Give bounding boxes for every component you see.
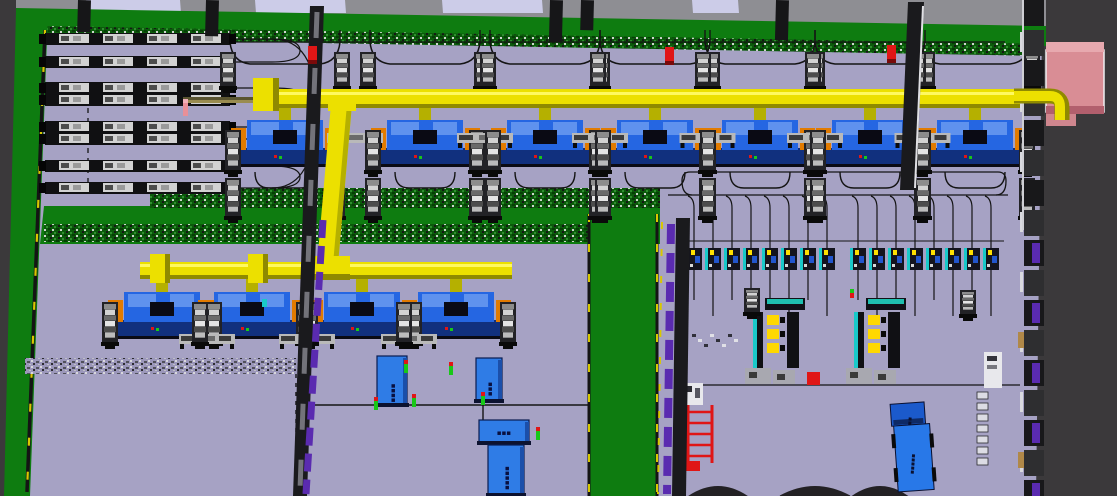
truck-body-label: ▪▪▪▪▪ <box>909 454 917 475</box>
storage-box-3-label: ▪▪▪ <box>497 429 511 437</box>
factory-scene: ▪▪▪▪ ▪▪▪ ▪▪▪ ▪▪▪▪▪ ▪▪ ▪▪▪▪▪ <box>0 0 1117 496</box>
storage-box-2-label: ▪▪▪ <box>486 382 494 396</box>
truck-cab-label: ▪▪ <box>906 417 914 426</box>
storage-box-1-label: ▪▪▪▪ <box>389 383 397 402</box>
3d-viewport[interactable]: ▪▪▪▪ ▪▪▪ ▪▪▪ ▪▪▪▪▪ ▪▪ ▪▪▪▪▪ <box>0 0 1117 496</box>
storage-box-4-label: ▪▪▪▪▪ <box>503 466 511 490</box>
